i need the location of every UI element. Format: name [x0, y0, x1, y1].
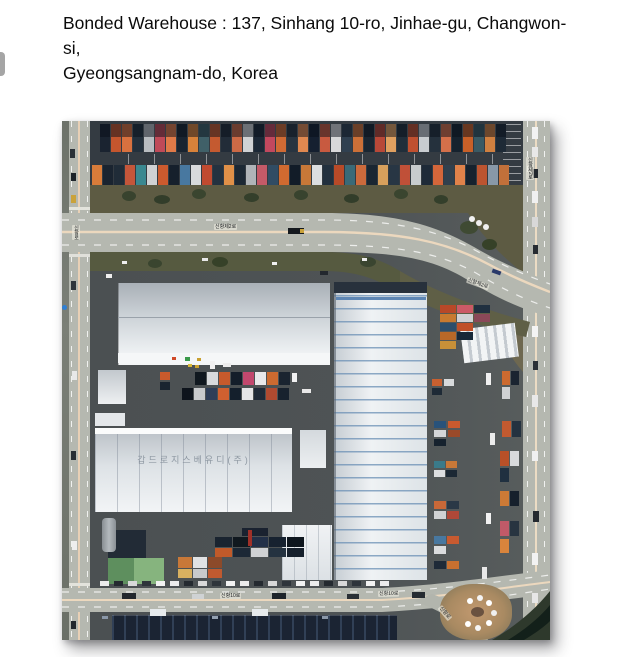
road-name-label: 신항제2로 [214, 224, 237, 230]
road-name-label: 신항제2로 [466, 277, 490, 291]
road-name-label: 신항10로 [378, 591, 399, 597]
road-name-label: 신항로 [437, 605, 452, 621]
title-line-2: Gyeongsangnam-do, Korea [63, 61, 568, 86]
satellite-map-image[interactable]: 갑드로지스베유디(주) 신항제2로신항제2로신항로신항제2로신항10로신항10로… [62, 121, 550, 640]
left-edge-artifact [0, 52, 5, 76]
road-name-label: 신항10로 [220, 593, 241, 599]
page-title: Bonded Warehouse : 137, Sinhang 10-ro, J… [63, 11, 568, 86]
document-page: Bonded Warehouse : 137, Sinhang 10-ro, J… [0, 0, 617, 657]
road-name-label: 신항제2로 [526, 157, 534, 180]
road-name-label: 신항로 [72, 225, 80, 240]
road-labels-layer: 신항제2로신항제2로신항로신항제2로신항10로신항10로신항로 [62, 121, 550, 640]
title-line-1: Bonded Warehouse : 137, Sinhang 10-ro, J… [63, 11, 568, 61]
